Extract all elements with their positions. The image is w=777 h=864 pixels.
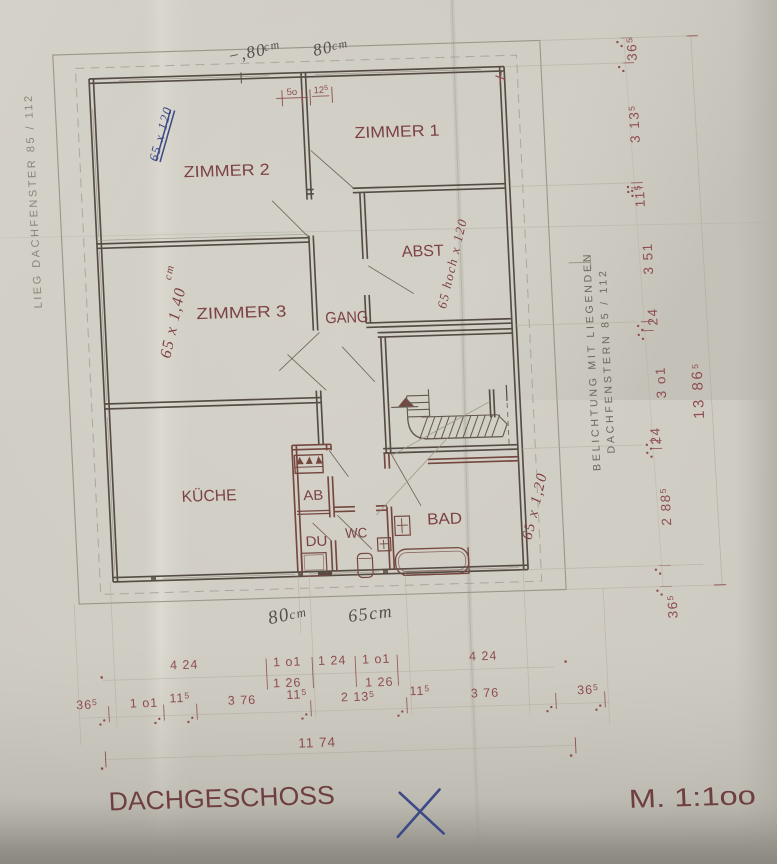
svg-text:1 o1: 1 o1 [130,696,159,711]
svg-text:24: 24 [647,426,663,444]
svg-text:1 24: 1 24 [318,653,347,668]
svg-text:3 76: 3 76 [471,686,500,701]
svg-text:5o: 5o [286,87,297,98]
svg-text:4 24: 4 24 [170,658,199,673]
svg-text:WC: WC [345,524,368,541]
svg-text:BAD: BAD [427,510,463,528]
svg-text:11 74: 11 74 [298,735,336,751]
svg-text:1 26: 1 26 [365,675,394,690]
svg-text:M. 1:1oo: M. 1:1oo [628,780,756,814]
svg-text:GANG: GANG [325,309,369,327]
svg-text:ABST: ABST [401,243,444,261]
svg-text:DU: DU [305,533,328,550]
svg-text:ZIMMER 1: ZIMMER 1 [354,123,440,143]
svg-text:3 76: 3 76 [228,693,257,708]
svg-text:KÜCHE: KÜCHE [181,486,237,506]
svg-text:13 865: 13 865 [688,361,708,419]
svg-text:1 o1: 1 o1 [362,652,391,667]
svg-text:ZIMMER 3: ZIMMER 3 [196,303,287,323]
svg-text:AB: AB [303,487,324,504]
svg-text:1 o1: 1 o1 [273,654,302,669]
svg-text:3 o1: 3 o1 [653,366,670,399]
svg-text:3 51: 3 51 [640,242,657,275]
svg-text:4 24: 4 24 [469,649,498,664]
svg-text:ZIMMER 2: ZIMMER 2 [183,162,270,182]
svg-text:24: 24 [645,307,661,325]
